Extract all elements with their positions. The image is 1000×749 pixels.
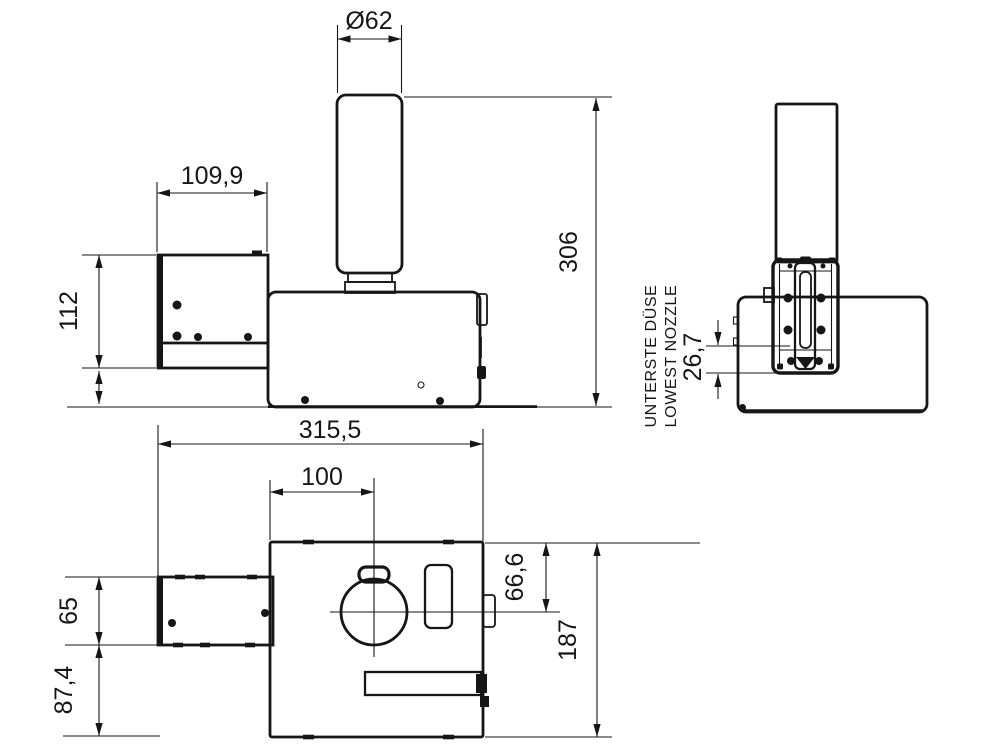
- dim-overall-height: 306: [404, 97, 612, 406]
- dim-label-bracket-height: 112: [55, 291, 83, 331]
- bracket-holes: [173, 301, 253, 342]
- dim-label-overall-length: 315,5: [299, 416, 362, 444]
- block-corner-mark: [828, 364, 834, 370]
- body-edge-marks: [303, 540, 454, 740]
- hole: [194, 333, 202, 341]
- bracket-outline: [158, 255, 268, 368]
- edge-mark: [195, 575, 205, 580]
- dim-bracket-rear-distance: 87,4: [50, 645, 160, 736]
- side-connector-tab-top: [483, 595, 495, 627]
- front-view: [734, 104, 928, 412]
- foot-screw: [301, 396, 309, 404]
- dim-label-bracket-width: 109,9: [181, 162, 244, 190]
- top-slot: [425, 565, 452, 628]
- dim-label-body-depth: 187: [554, 619, 582, 661]
- dim-nozzle-diameter: Ø62: [338, 7, 402, 93]
- edge-mark: [175, 575, 185, 580]
- foot-screw: [436, 397, 444, 405]
- rear-bar: [365, 672, 481, 695]
- side-view: [67, 95, 612, 407]
- screw: [787, 357, 795, 365]
- body-outline: [268, 292, 480, 407]
- edge-mark: [443, 540, 454, 545]
- nozzle-slot: [800, 272, 811, 348]
- rear-connector-pin: [480, 696, 489, 707]
- dim-label-bracket-rear-distance: 87,4: [50, 666, 78, 715]
- rear-bar-connector: [476, 674, 487, 693]
- arm-edge-marks: [173, 575, 257, 648]
- screw: [784, 294, 793, 303]
- annotation-lowest-nozzle-de: UNTERSTE DÜSE: [642, 285, 660, 428]
- plan-view: [158, 478, 560, 739]
- block-corner-mark: [777, 364, 783, 370]
- corner-screw: [739, 404, 746, 411]
- side-latch: [477, 366, 486, 379]
- nozzle-block: [773, 260, 838, 373]
- block-top-tab: [800, 257, 811, 263]
- dim-overall-length: 315,5: [158, 416, 483, 576]
- nozzle-tip-marker: [796, 357, 815, 369]
- screw: [784, 326, 793, 335]
- edge-mark: [247, 575, 257, 580]
- dim-bracket-width: 109,9: [157, 162, 267, 252]
- dim-nozzle-axis-offset: 100: [270, 463, 374, 540]
- screw: [815, 357, 823, 365]
- nozzle-cylinder: [337, 95, 402, 273]
- nozzle-channel: [795, 263, 815, 369]
- hole: [173, 301, 182, 310]
- dim-label-nozzle-axis-offset: 100: [301, 463, 343, 491]
- technical-drawing-sheet: Ø62 109,9 112 306 315,5: [0, 0, 1000, 749]
- arm-screw: [261, 609, 269, 617]
- arm-outline: [158, 577, 273, 645]
- lowest-nozzle-annotation: UNTERSTE DÜSE LOWEST NOZZLE: [642, 285, 680, 428]
- bracket-top-mark: [252, 251, 262, 256]
- dim-label-outlet-offset: 66,6: [501, 553, 529, 602]
- dim-label-lowest-nozzle-offset: 26,7: [679, 333, 707, 382]
- drawing-canvas: Ø62 109,9 112 306 315,5: [0, 0, 1000, 749]
- edge-mark: [443, 735, 454, 740]
- dim-label-overall-height: 306: [555, 231, 583, 273]
- screw: [817, 326, 826, 335]
- pin-hole: [418, 382, 424, 388]
- screw: [817, 294, 826, 303]
- dim-label-bracket-depth: 65: [55, 597, 83, 625]
- annotation-lowest-nozzle-en: LOWEST NOZZLE: [663, 285, 680, 428]
- dim-label-nozzle-diameter: Ø62: [345, 7, 392, 35]
- nozzle-column: [776, 104, 837, 262]
- block-corner-mark: [776, 258, 783, 263]
- block-screws: [784, 294, 826, 366]
- dim-bracket-height: 112: [55, 255, 156, 404]
- block-corner-mark: [829, 258, 836, 263]
- hole: [244, 333, 252, 341]
- front-body-outline: [738, 297, 927, 412]
- edge-mark: [303, 735, 314, 740]
- dim-outlet-offset: 66,6: [485, 543, 700, 612]
- edge-mark: [303, 540, 314, 545]
- arm-screw: [168, 619, 176, 627]
- hole: [173, 332, 182, 341]
- pin: [788, 264, 793, 269]
- pin: [821, 264, 826, 269]
